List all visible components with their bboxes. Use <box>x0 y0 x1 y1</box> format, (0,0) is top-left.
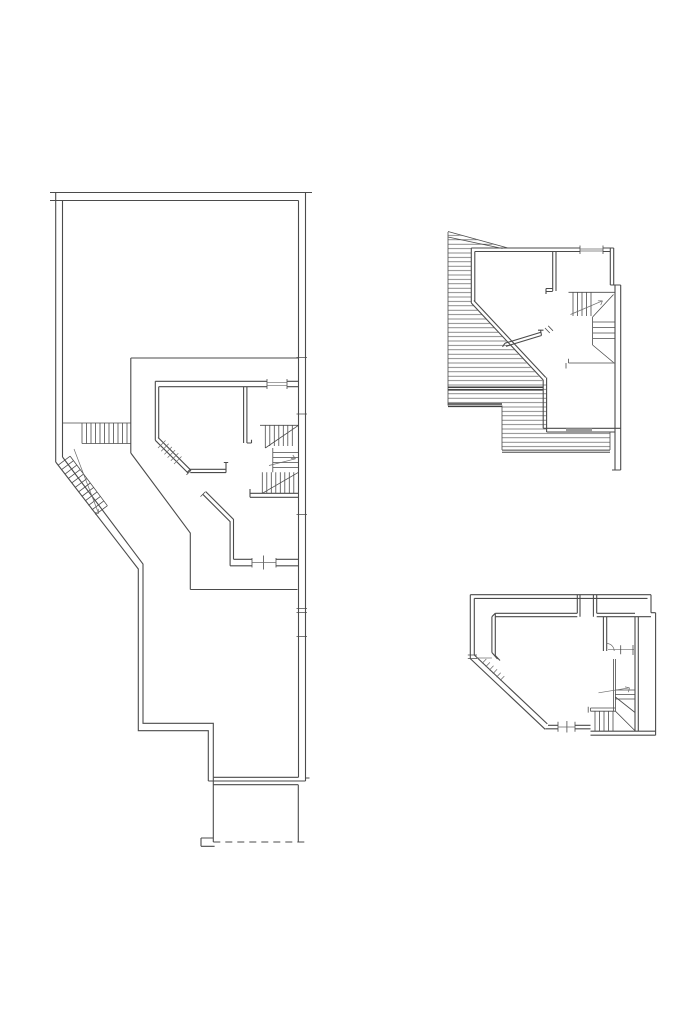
terrace-threshold <box>566 428 592 432</box>
sheet-background <box>0 0 683 1023</box>
drawing-sheet <box>0 0 683 1023</box>
floor-plan-drawing <box>0 0 683 1023</box>
